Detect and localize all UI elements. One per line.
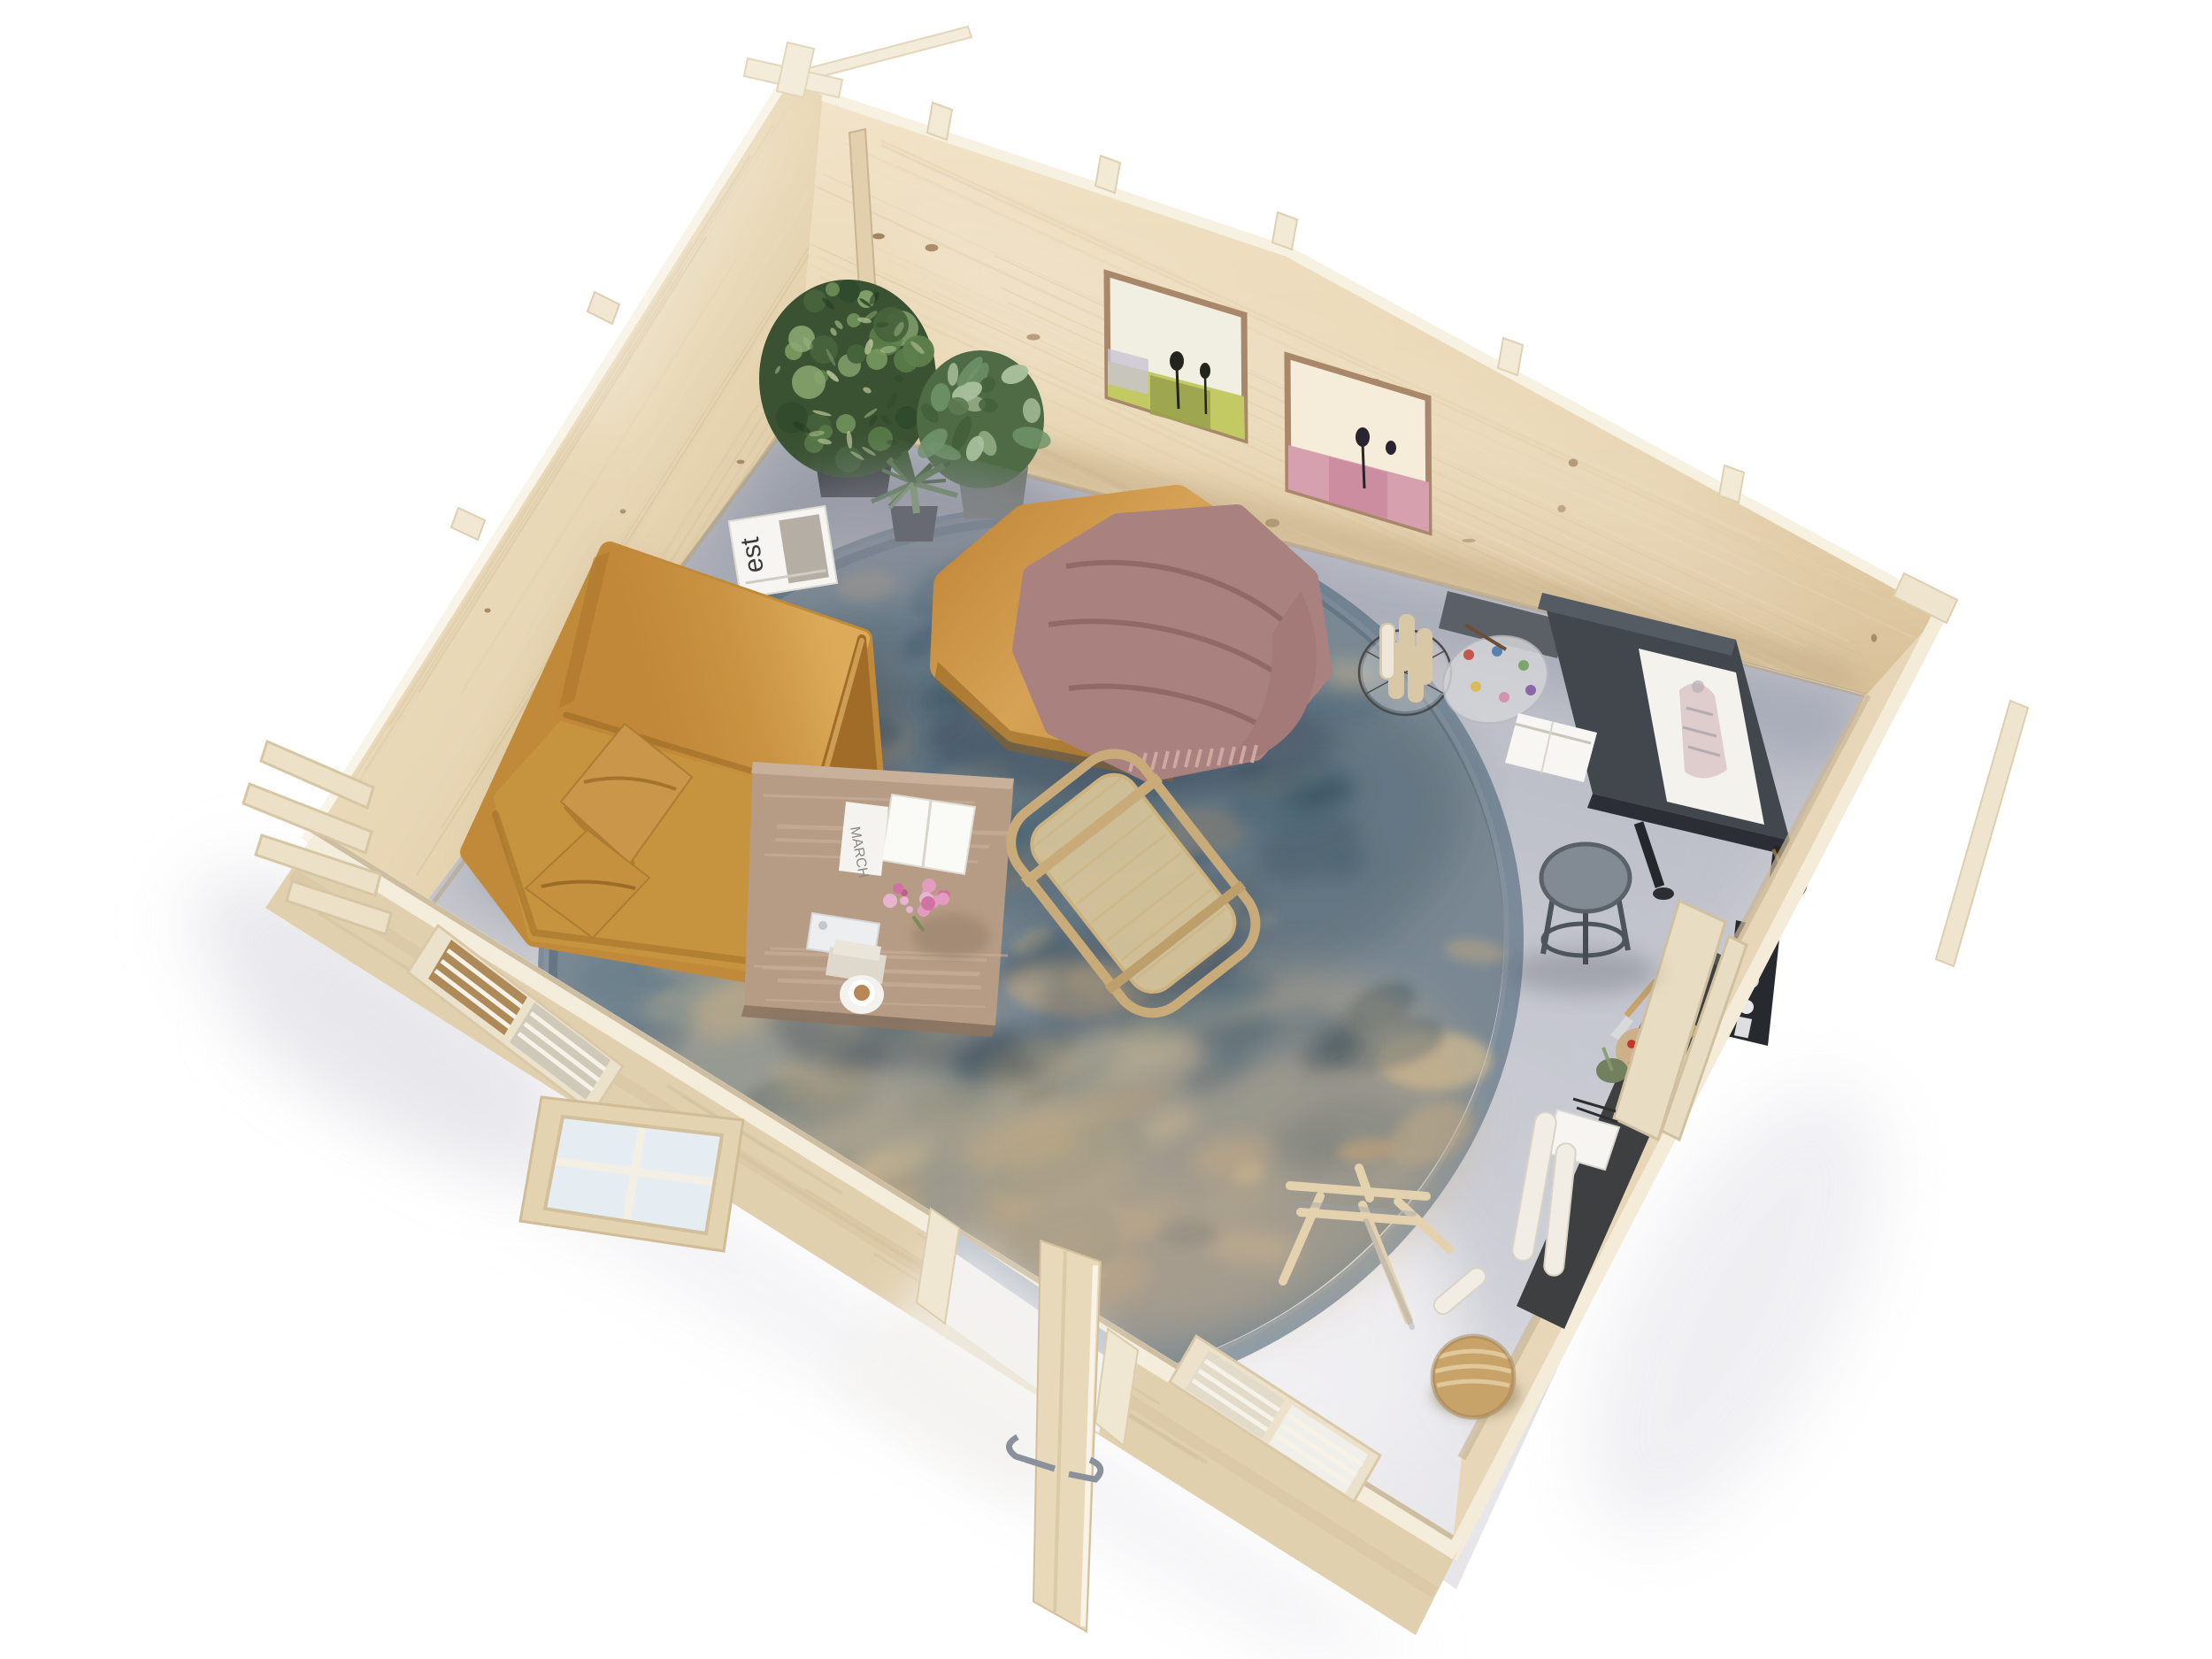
svg-text:est: est: [735, 534, 770, 574]
